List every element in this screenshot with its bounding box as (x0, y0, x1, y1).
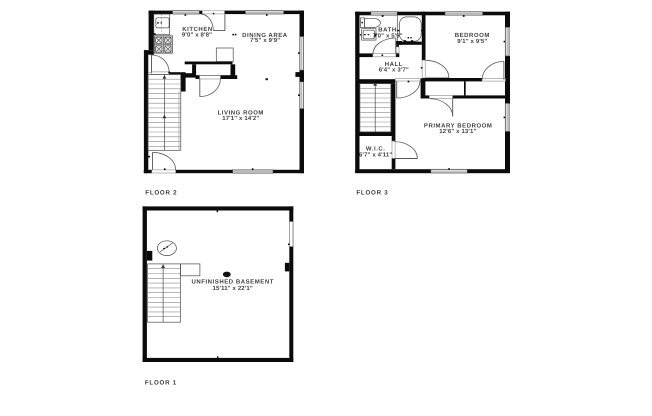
svg-text:BEDROOM: BEDROOM (455, 32, 490, 39)
svg-text:12'6" x 13'1": 12'6" x 13'1" (439, 128, 476, 135)
svg-text:9'0" x 8'8": 9'0" x 8'8" (182, 32, 212, 39)
svg-text:UNFINISHED BASEMENT: UNFINISHED BASEMENT (191, 278, 273, 285)
svg-text:7'5" x 9'9": 7'5" x 9'9" (250, 37, 280, 44)
svg-text:6'4" x 3'7": 6'4" x 3'7" (379, 66, 409, 73)
svg-text:FLOOR 1: FLOOR 1 (145, 379, 177, 386)
svg-text:9'1" x 9'5": 9'1" x 9'5" (457, 38, 487, 45)
svg-text:7'0" x 5'9": 7'0" x 5'9" (373, 32, 403, 39)
svg-text:15'11" x 22'1": 15'11" x 22'1" (213, 285, 253, 292)
svg-text:6'7" x 4'11": 6'7" x 4'11" (359, 152, 392, 159)
svg-text:FLOOR 3: FLOOR 3 (356, 189, 388, 196)
svg-text:W.I.C.: W.I.C. (366, 146, 386, 153)
svg-text:FLOOR 2: FLOOR 2 (145, 189, 177, 196)
svg-text:17'1" x 14'2": 17'1" x 14'2" (222, 115, 259, 122)
